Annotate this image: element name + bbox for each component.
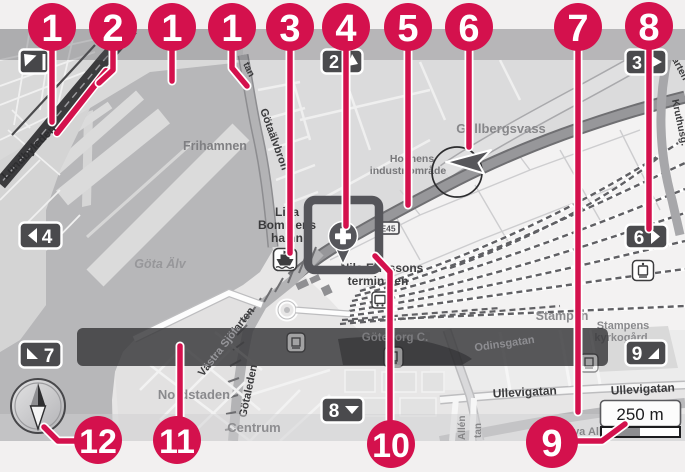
svg-text:4: 4 [42, 227, 53, 248]
svg-text:8: 8 [329, 401, 340, 422]
svg-text:1: 1 [221, 8, 242, 50]
svg-text:1: 1 [161, 8, 182, 50]
svg-text:2: 2 [329, 52, 339, 72]
svg-text:terminalen: terminalen [348, 274, 409, 288]
svg-text:8: 8 [638, 7, 659, 49]
svg-text:6: 6 [634, 228, 645, 249]
svg-text:11: 11 [159, 423, 195, 461]
svg-text:Göteborg C.: Göteborg C. [362, 332, 428, 344]
svg-text:1: 1 [41, 8, 62, 50]
svg-text:2: 2 [102, 8, 123, 50]
svg-text:5: 5 [397, 8, 418, 50]
svg-text:4: 4 [335, 8, 356, 50]
svg-text:9: 9 [632, 344, 643, 365]
svg-text:12: 12 [79, 423, 117, 461]
svg-text:9: 9 [541, 423, 562, 465]
svg-text:Nordstaden: Nordstaden [158, 387, 230, 402]
svg-text:3: 3 [632, 53, 642, 73]
svg-text:7: 7 [44, 346, 55, 367]
svg-text:Göta Älv: Göta Älv [134, 256, 186, 271]
svg-text:10: 10 [372, 427, 410, 465]
svg-text:6: 6 [458, 8, 479, 50]
svg-text:Frihamnen: Frihamnen [183, 139, 247, 153]
svg-text:3: 3 [279, 8, 300, 50]
svg-text:7: 7 [567, 8, 588, 50]
